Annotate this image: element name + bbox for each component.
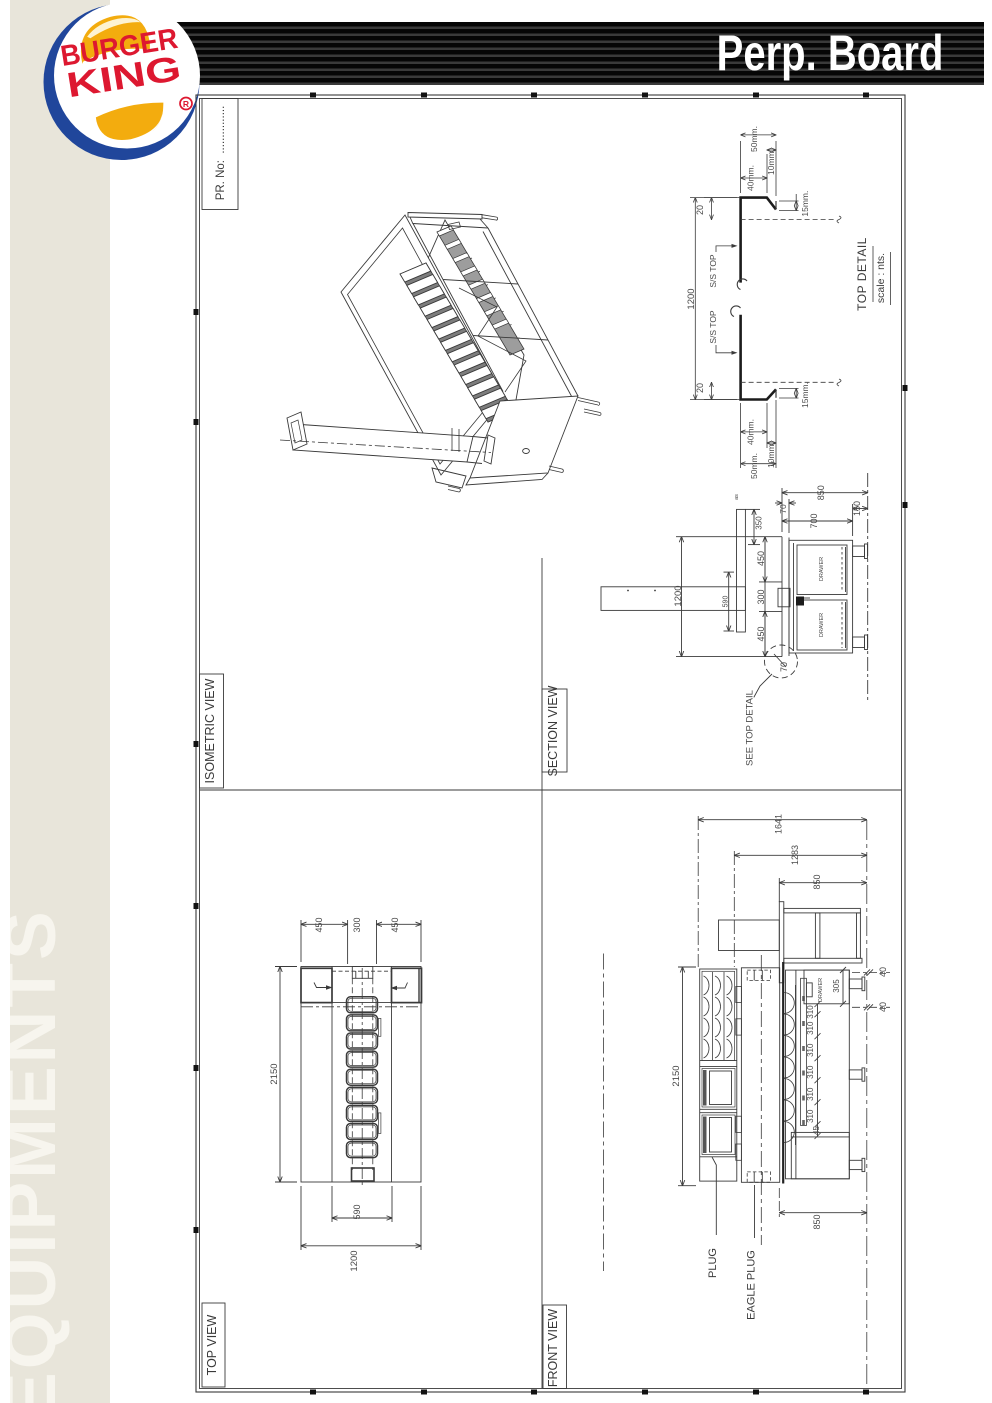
svg-text:EAGLE PLUG: EAGLE PLUG <box>746 1250 758 1320</box>
svg-text:20: 20 <box>695 383 705 393</box>
svg-text:450: 450 <box>390 917 400 932</box>
svg-text:70: 70 <box>779 662 789 672</box>
svg-text:1641: 1641 <box>774 814 784 834</box>
svg-text:300: 300 <box>756 589 766 604</box>
svg-text:50mm.: 50mm. <box>749 453 759 479</box>
svg-text:310: 310 <box>806 1109 815 1123</box>
svg-text:as: as <box>734 494 740 500</box>
svg-text:FRONT VIEW: FRONT VIEW <box>546 1309 560 1387</box>
svg-text:DRAWER: DRAWER <box>819 557 825 581</box>
svg-text:590: 590 <box>352 1204 362 1219</box>
svg-text:150: 150 <box>852 501 862 516</box>
svg-text:15mm.: 15mm. <box>800 191 810 217</box>
svg-text:S/S TOP: S/S TOP <box>708 310 718 344</box>
svg-text:ISOMETRIC VIEW: ISOMETRIC VIEW <box>203 678 217 783</box>
svg-text:450: 450 <box>756 551 766 566</box>
svg-text:310: 310 <box>806 1065 815 1079</box>
svg-text:2150: 2150 <box>671 1065 682 1086</box>
svg-text:850: 850 <box>812 874 822 889</box>
svg-text:45: 45 <box>812 1126 821 1135</box>
svg-text:20: 20 <box>695 205 705 215</box>
svg-text:50mm.: 50mm. <box>749 126 759 152</box>
svg-text:310: 310 <box>806 1087 815 1101</box>
svg-text:15mm.: 15mm. <box>800 382 810 408</box>
svg-text:310: 310 <box>806 1005 815 1019</box>
svg-text:40: 40 <box>878 967 888 977</box>
svg-text:310: 310 <box>806 1043 815 1057</box>
svg-text:450: 450 <box>314 917 324 932</box>
svg-text:40mm.: 40mm. <box>746 165 756 191</box>
svg-text:590: 590 <box>723 596 730 608</box>
svg-text:SECTION VIEW: SECTION VIEW <box>546 685 560 776</box>
svg-text:SEE TOP DETAIL: SEE TOP DETAIL <box>745 690 756 766</box>
svg-text:305: 305 <box>832 979 841 993</box>
svg-text:DRAWER: DRAWER <box>818 978 824 1002</box>
svg-text:1200: 1200 <box>673 585 684 606</box>
svg-text:DRAWER: DRAWER <box>819 613 825 637</box>
svg-text:S/S TOP: S/S TOP <box>708 254 718 288</box>
svg-text:300: 300 <box>352 917 362 932</box>
svg-text:scale : nts.: scale : nts. <box>875 253 887 303</box>
svg-text:2150: 2150 <box>269 1063 280 1084</box>
svg-text:TOP DETAIL: TOP DETAIL <box>855 237 869 311</box>
svg-text:850: 850 <box>812 1214 822 1229</box>
svg-text:10mm.: 10mm. <box>766 149 776 175</box>
svg-text:850: 850 <box>816 485 826 500</box>
svg-text:70: 70 <box>778 504 788 514</box>
svg-text:TOP VIEW: TOP VIEW <box>205 1314 219 1375</box>
svg-text:1283: 1283 <box>790 845 800 865</box>
svg-text:PR. No: ...............: PR. No: ............... <box>215 106 227 201</box>
svg-text:1200: 1200 <box>686 288 697 309</box>
svg-text:350: 350 <box>755 516 764 530</box>
svg-text:450: 450 <box>756 626 766 641</box>
svg-text:PLUG: PLUG <box>707 1248 719 1278</box>
svg-text:40mm.: 40mm. <box>746 419 756 445</box>
svg-text:310: 310 <box>806 1021 815 1035</box>
svg-text:700: 700 <box>809 513 819 528</box>
svg-text:1200: 1200 <box>349 1250 360 1271</box>
svg-text:40: 40 <box>878 1002 888 1012</box>
